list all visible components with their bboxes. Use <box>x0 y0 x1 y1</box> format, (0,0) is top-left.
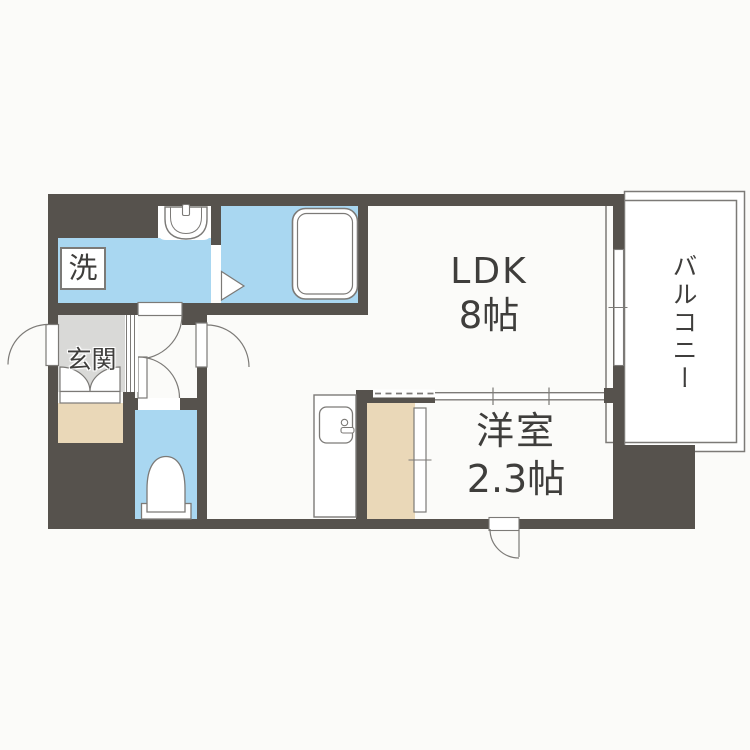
floorplan-canvas: LDK 8帖 洋室 2.3帖 バルコニー 玄関 洗 <box>0 0 750 750</box>
washroom-door-arc <box>138 315 182 359</box>
wall-hall-corner <box>182 303 207 325</box>
ldk-room-size: 8帖 <box>399 295 579 336</box>
entrance-door-leaf <box>46 325 59 366</box>
dashed-open-boundary <box>373 390 435 398</box>
ldk-room-name: LDK <box>399 252 579 292</box>
ldk-room-label: LDK 8帖 <box>399 252 579 337</box>
bathtub-icon <box>293 209 358 300</box>
wall-bottom <box>48 519 695 529</box>
washroom-door-leaf <box>138 303 182 316</box>
wall-wash-bath-divider <box>211 206 221 245</box>
toilet-bowl <box>147 457 185 513</box>
kitchen-sink-icon <box>320 407 353 443</box>
kitchen-unit <box>314 395 356 517</box>
wall-sliding-end-stub <box>604 388 614 403</box>
western-room-door-opening <box>489 518 519 531</box>
kitchen-faucet-icon <box>341 419 347 425</box>
washroom-door-swing-icon <box>138 303 182 360</box>
entrance-door-arc <box>8 325 48 365</box>
toilet-door-opening <box>138 398 180 410</box>
western-room-size: 2.3帖 <box>426 458 606 501</box>
entrance-step-lines <box>125 315 138 392</box>
bathtub-outer <box>293 209 358 300</box>
entrance-door-swing-icon <box>8 325 59 366</box>
wall-top <box>48 194 624 206</box>
wall-hall-right <box>197 367 207 519</box>
western-room-door-swing-icon <box>489 518 519 559</box>
western-room-door-arc <box>490 529 519 558</box>
laundry-machine-label: 洗 <box>60 247 106 290</box>
washbasin-tap <box>183 205 190 216</box>
washbasin-icon <box>165 205 207 240</box>
entrance-label: 玄関 <box>58 340 125 376</box>
hallway-door-arc <box>207 325 249 367</box>
bathroom-door-opening <box>211 245 221 300</box>
hallway-ldk-door-swing-icon <box>196 323 249 367</box>
sliding-door-icon <box>435 388 604 406</box>
dashed-boundary-strip <box>373 390 435 398</box>
shoe-cabinet-body <box>60 392 120 404</box>
entrance-storage-box <box>58 403 123 443</box>
wall-filler-top-left <box>48 206 158 238</box>
wall-toilet-left-block <box>48 443 135 519</box>
western-room-label: 洋室 2.3帖 <box>426 410 606 500</box>
toilet-door-leaf <box>138 357 147 398</box>
wall-bathroom-right <box>358 194 368 315</box>
wall-toilet-left-strip <box>123 392 135 443</box>
toilet-door-swing-icon <box>138 357 180 410</box>
western-room-name: 洋室 <box>426 410 606 453</box>
closet-floor <box>367 403 415 519</box>
kitchen-faucet-handle <box>341 428 354 434</box>
wall-kitchen-closet <box>356 390 367 519</box>
balcony-label: バルコニー <box>671 253 701 398</box>
wall-block-bottom-right <box>613 445 695 529</box>
hallway-door-leaf <box>196 323 207 367</box>
wall-sanitary-bottom <box>48 303 368 315</box>
